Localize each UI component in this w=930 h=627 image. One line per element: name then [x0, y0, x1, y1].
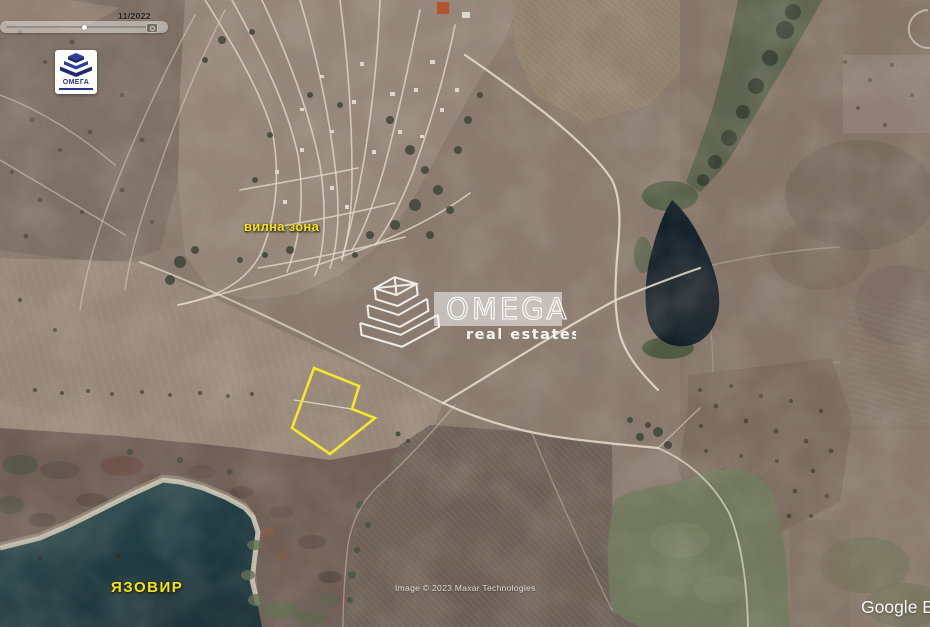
google-earth-map-view[interactable]: OMEGA real estates 11/2022 ОМЕГА вилна з…	[0, 0, 930, 627]
time-slider-thumb[interactable]	[82, 25, 87, 30]
time-slider-bar[interactable]	[0, 21, 168, 33]
texture-grain	[0, 0, 930, 627]
time-slider-track	[6, 26, 156, 28]
google-earth-watermark: Google E	[861, 597, 930, 618]
satellite-map[interactable]	[0, 0, 930, 627]
time-slider-clock-icon[interactable]	[146, 23, 158, 33]
agency-logo-pyramid-icon	[60, 53, 92, 77]
label-villa-zone: вилна зона	[244, 219, 319, 234]
agency-logo: ОМЕГА	[55, 50, 97, 94]
time-slider-date: 11/2022	[118, 11, 151, 21]
agency-logo-text: ОМЕГА	[55, 79, 97, 86]
label-reservoir: ЯЗОВИР	[111, 579, 183, 596]
imagery-attribution: Image © 2023 Maxar Technologies	[395, 583, 536, 593]
agency-logo-underline	[59, 88, 93, 90]
